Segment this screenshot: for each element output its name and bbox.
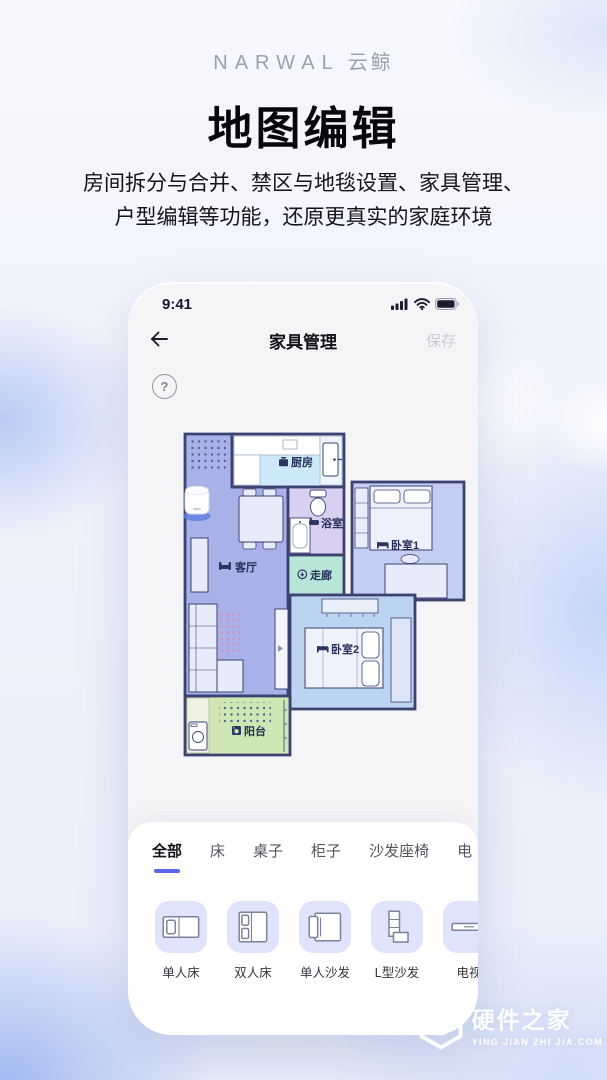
bed-2	[305, 628, 383, 688]
room-label-corridor: 走廊	[309, 568, 332, 582]
room-label-kitchen: 厨房	[291, 455, 313, 469]
brand-logo: NARWAL云鲸	[0, 46, 607, 75]
toilet	[310, 490, 326, 516]
tab-bed[interactable]: 床	[210, 840, 225, 875]
status-icons	[391, 298, 460, 310]
map-canvas: 客厅	[183, 432, 467, 758]
washing-machine	[189, 722, 207, 750]
furniture-item-single-bed[interactable]: 单人床	[155, 901, 207, 981]
tab-table[interactable]: 桌子	[253, 840, 283, 875]
category-tabs: 全部 床 桌子 柜子 沙发座椅 电	[128, 822, 478, 875]
carpet-blue	[190, 439, 230, 469]
desk-chair-1	[401, 555, 419, 564]
room-corridor[interactable]: 走廊	[288, 555, 344, 595]
bathroom-sink	[290, 518, 310, 553]
nav-bar: 家具管理 保存	[128, 324, 478, 356]
balcony-door	[275, 609, 288, 689]
l-sofa-icon	[384, 910, 410, 944]
dining-table	[239, 489, 283, 549]
status-time: 9:41	[162, 296, 192, 313]
page-title: 地图编辑	[0, 92, 607, 157]
watermark: 硬件之家 YING JIAN ZHI JIA.COM	[417, 998, 603, 1050]
kitchen-counter-left	[234, 455, 260, 485]
double-bed-icon	[238, 911, 268, 943]
save-button[interactable]: 保存	[426, 330, 456, 351]
desk-1	[385, 564, 447, 598]
brand-suffix: 云鲸	[348, 52, 394, 74]
active-tab-indicator	[154, 869, 180, 873]
room-label-balcony: 阳台	[244, 724, 266, 738]
single-sofa-icon	[308, 912, 342, 942]
phone-mockup: 9:41	[128, 282, 478, 1035]
furniture-item-single-sofa[interactable]: 单人沙发	[299, 901, 351, 981]
subtitle-line-2: 户型编辑等功能，还原更真实的家庭环境	[0, 201, 607, 235]
tv-cabinet	[191, 538, 208, 592]
room-balcony[interactable]: 阳台	[185, 696, 290, 755]
watermark-name: 硬件之家	[472, 1001, 603, 1035]
washing-machine-icon	[232, 726, 241, 735]
room-label-living: 客厅	[234, 560, 257, 574]
cellular-signal-icon	[391, 298, 409, 310]
watermark-domain: YING JIAN ZHI JIA.COM	[472, 1037, 603, 1047]
tab-all[interactable]: 全部	[152, 840, 182, 875]
page: NARWAL云鲸 地图编辑 房间拆分与合并、禁区与地毯设置、家具管理、 户型编辑…	[0, 0, 607, 1080]
watermark-logo-icon	[417, 998, 465, 1050]
side-cabinet-2	[391, 618, 411, 702]
robot-dock	[184, 486, 211, 521]
furniture-items: 单人床 双人床	[128, 875, 478, 981]
tab-cabinet[interactable]: 柜子	[311, 840, 341, 875]
wardrobe-1	[355, 488, 368, 548]
tab-tv[interactable]: 电	[457, 840, 472, 875]
tv-cabinet-icon	[451, 920, 478, 934]
carpet-red	[220, 612, 240, 654]
room-label-bathroom: 浴室	[321, 516, 343, 530]
single-bed-icon	[162, 915, 200, 939]
subtitle-line-1: 房间拆分与合并、禁区与地毯设置、家具管理、	[0, 167, 607, 201]
wifi-icon	[414, 298, 430, 310]
drying-area	[219, 702, 271, 724]
room-bedroom2[interactable]: 卧室2	[290, 595, 415, 709]
help-button[interactable]: ?	[152, 374, 177, 399]
kitchen-door	[320, 436, 342, 485]
room-kitchen[interactable]: 厨房	[232, 434, 344, 487]
room-bedroom1[interactable]: 卧室1	[352, 482, 464, 600]
furniture-item-tv-cabinet[interactable]: 电视	[443, 901, 478, 981]
room-bathroom[interactable]: 浴室	[288, 487, 344, 555]
room-label-bedroom2: 卧室2	[331, 642, 359, 656]
battery-icon	[435, 298, 460, 310]
page-subtitle: 房间拆分与合并、禁区与地毯设置、家具管理、 户型编辑等功能，还原更真实的家庭环境	[0, 167, 607, 235]
kitchen-counter-top	[234, 436, 320, 455]
room-label-bedroom1: 卧室1	[391, 538, 419, 552]
furniture-item-double-bed[interactable]: 双人床	[227, 901, 279, 981]
furniture-item-l-sofa[interactable]: L型沙发	[371, 901, 423, 981]
status-bar: 9:41	[128, 294, 478, 316]
tab-sofa-seat[interactable]: 沙发座椅	[369, 840, 429, 875]
brand-name: NARWAL	[213, 52, 339, 74]
